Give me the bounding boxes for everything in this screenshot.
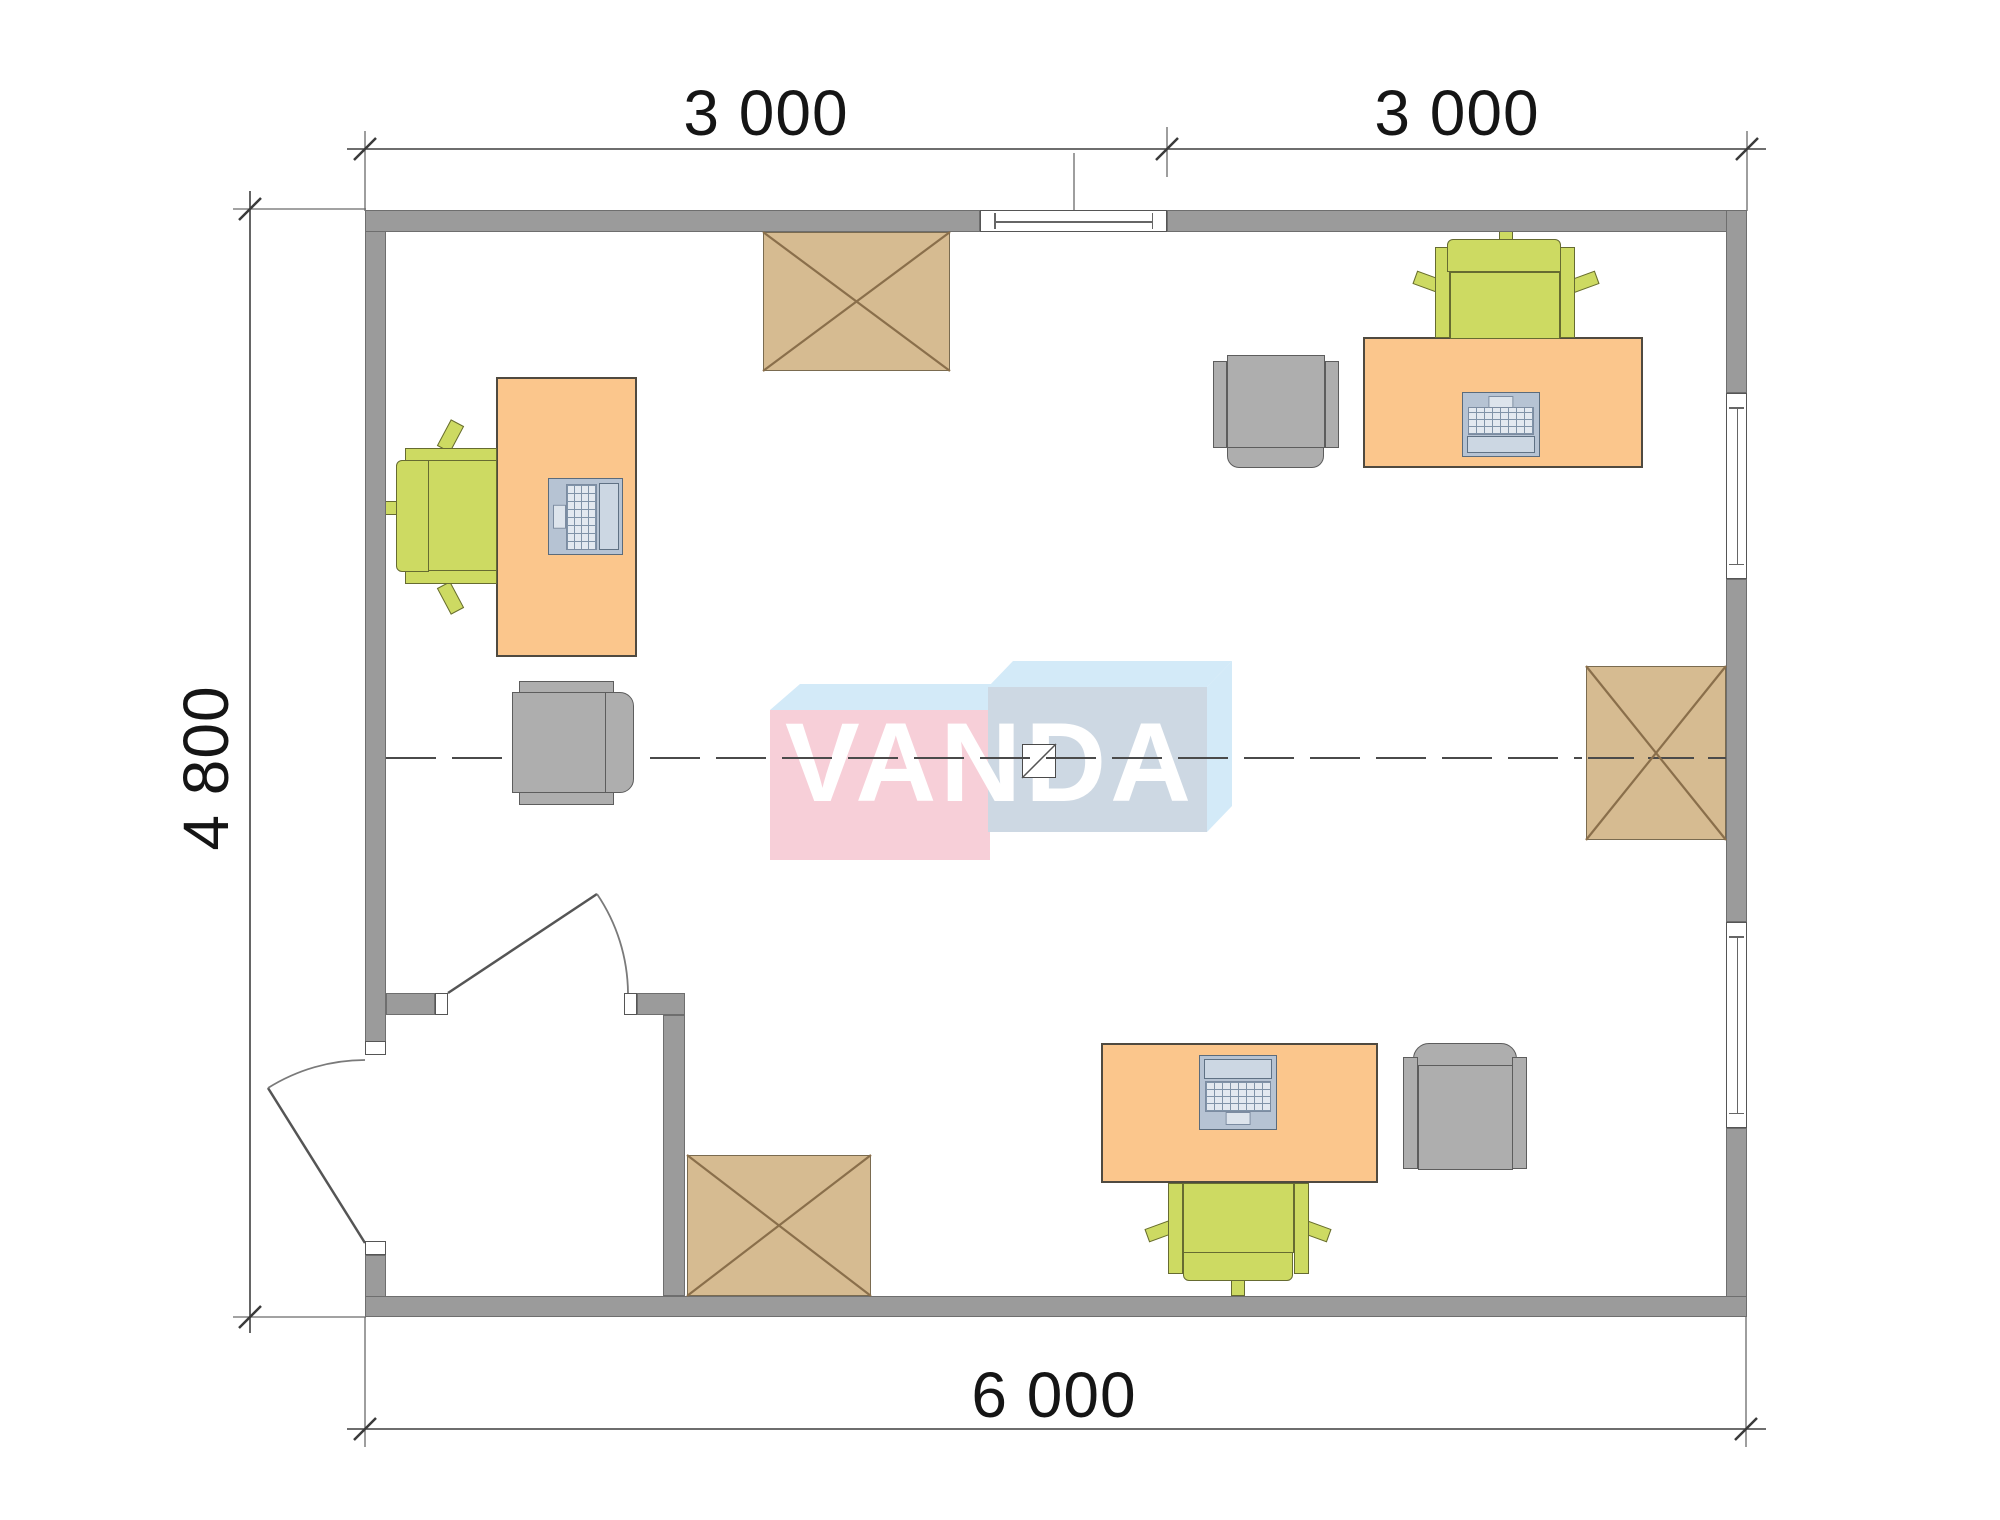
watermark-text: VANDA bbox=[775, 700, 1205, 825]
chair-armrest bbox=[405, 570, 497, 584]
laptop-keyboard bbox=[1205, 1081, 1272, 1112]
logo-blue-box-side-flap bbox=[1207, 661, 1232, 832]
crossed-table-top bbox=[763, 232, 950, 371]
wall-bottom bbox=[365, 1296, 1747, 1317]
laptop-screen bbox=[1204, 1059, 1272, 1079]
laptop-keyboard bbox=[1468, 407, 1535, 434]
dim-label-left: 4 800 bbox=[169, 568, 243, 968]
office-chair-top-right bbox=[1414, 228, 1598, 340]
door-leaf bbox=[448, 894, 597, 993]
laptop-left bbox=[548, 478, 623, 555]
entrance-door bbox=[268, 1060, 365, 1243]
logo-blue-box-top-flap bbox=[988, 661, 1232, 687]
chair-seat bbox=[512, 692, 606, 793]
wall-right-middle bbox=[1726, 579, 1747, 922]
office-chair-bottom bbox=[1146, 1183, 1330, 1296]
wall-right-lower bbox=[1726, 1128, 1747, 1317]
chair-caster bbox=[437, 581, 464, 615]
gray-chair-left bbox=[512, 681, 634, 805]
office-chair-left bbox=[382, 421, 497, 613]
door-jamb bbox=[365, 1041, 386, 1055]
chair-backrest bbox=[1447, 239, 1561, 272]
chair-backrest bbox=[1227, 446, 1324, 468]
chair-armrest bbox=[1294, 1183, 1309, 1274]
wall-left-upper bbox=[365, 210, 386, 1043]
door-jamb bbox=[435, 993, 448, 1015]
crossed-table-bottom bbox=[687, 1155, 871, 1296]
vestibule-wall-side bbox=[663, 1015, 685, 1296]
dim-label-bottom: 6 000 bbox=[854, 1358, 1254, 1432]
wall-right-upper bbox=[1726, 210, 1747, 393]
chair-armrest bbox=[1560, 247, 1575, 338]
chair-seat bbox=[1183, 1183, 1294, 1253]
chair-backrest bbox=[396, 460, 429, 572]
chair-backrest bbox=[1183, 1252, 1293, 1281]
door-jamb bbox=[624, 993, 637, 1015]
chair-armrest bbox=[1168, 1183, 1183, 1274]
chair-armrest bbox=[1512, 1057, 1527, 1169]
vestibule-wall-left bbox=[386, 993, 435, 1015]
chair-armrest bbox=[519, 792, 614, 805]
crossed-table-right bbox=[1586, 666, 1726, 840]
chair-seat bbox=[1418, 1065, 1513, 1170]
door-jamb bbox=[365, 1241, 386, 1255]
laptop-keyboard bbox=[566, 484, 597, 550]
laptop-trackpad bbox=[1489, 396, 1514, 407]
dim-label-top-right: 3 000 bbox=[1257, 76, 1657, 150]
window-right-upper bbox=[1726, 393, 1747, 579]
laptop-trackpad bbox=[553, 504, 566, 529]
dim-label-top-left: 3 000 bbox=[566, 76, 966, 150]
laptop-screen bbox=[1467, 436, 1535, 454]
wall-top-left bbox=[365, 210, 980, 232]
chair-backrest bbox=[603, 692, 634, 793]
laptop-screen bbox=[599, 483, 619, 551]
chair-seat bbox=[428, 460, 497, 571]
chair-armrest bbox=[1213, 361, 1227, 448]
door-leaf bbox=[268, 1088, 365, 1243]
gray-armchair-bottom bbox=[1403, 1043, 1527, 1170]
chair-armrest bbox=[1325, 361, 1339, 448]
gray-chair-top-right bbox=[1213, 355, 1339, 468]
window-top bbox=[980, 210, 1167, 232]
axis-marker-square bbox=[1022, 744, 1056, 778]
laptop-top-right bbox=[1462, 392, 1540, 457]
chair-seat bbox=[1450, 272, 1560, 339]
door-swing-arc bbox=[268, 1060, 365, 1088]
floor-plan: VANDA bbox=[0, 0, 2000, 1520]
door-swing-arc bbox=[597, 894, 628, 993]
laptop-bottom bbox=[1199, 1055, 1277, 1130]
chair-armrest bbox=[1403, 1057, 1418, 1169]
interior-door bbox=[448, 894, 628, 993]
laptop-trackpad bbox=[1226, 1112, 1251, 1125]
vestibule-wall-right bbox=[637, 993, 685, 1015]
wall-top-right bbox=[1167, 210, 1747, 232]
chair-seat bbox=[1227, 355, 1325, 448]
window-right-lower bbox=[1726, 922, 1747, 1128]
